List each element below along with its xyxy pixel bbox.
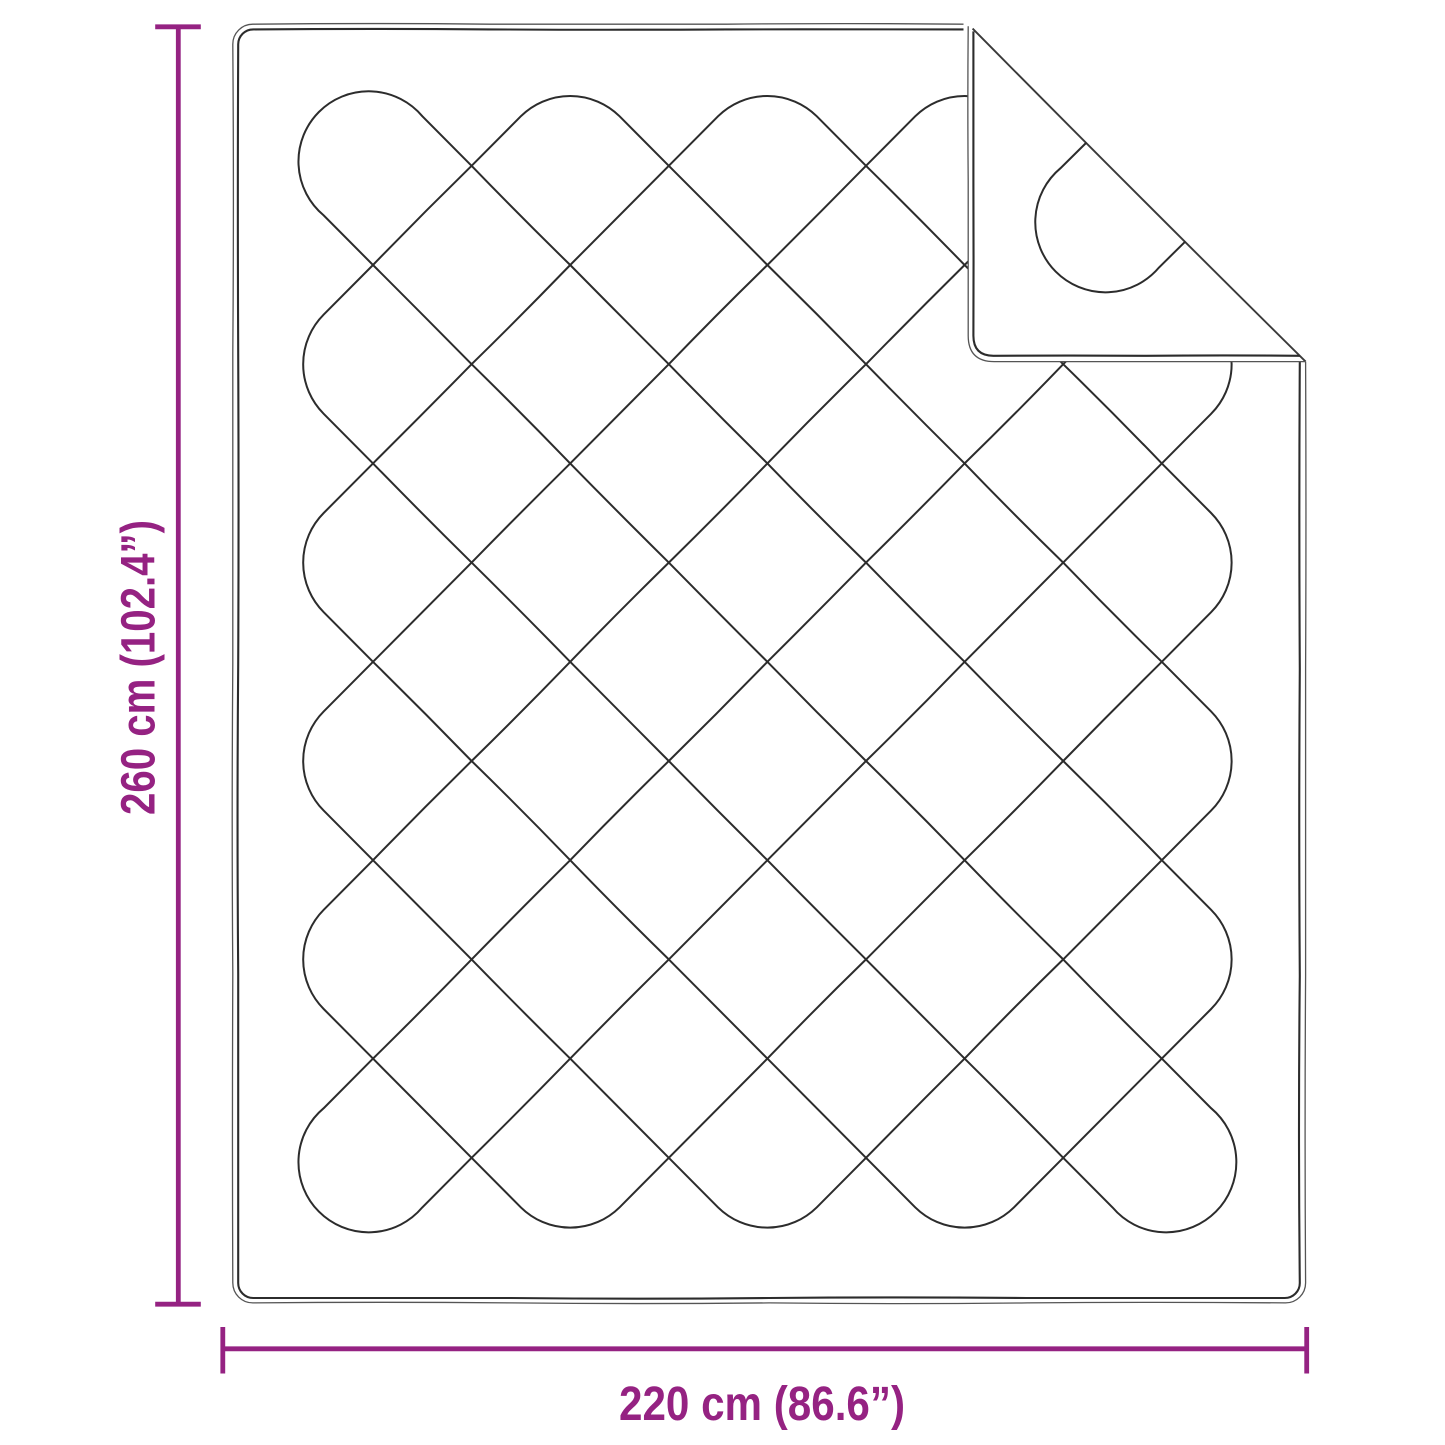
- svg-text:220 cm (86.6”): 220 cm (86.6”): [619, 1377, 905, 1431]
- svg-text:260 cm (102.4”): 260 cm (102.4”): [112, 520, 166, 815]
